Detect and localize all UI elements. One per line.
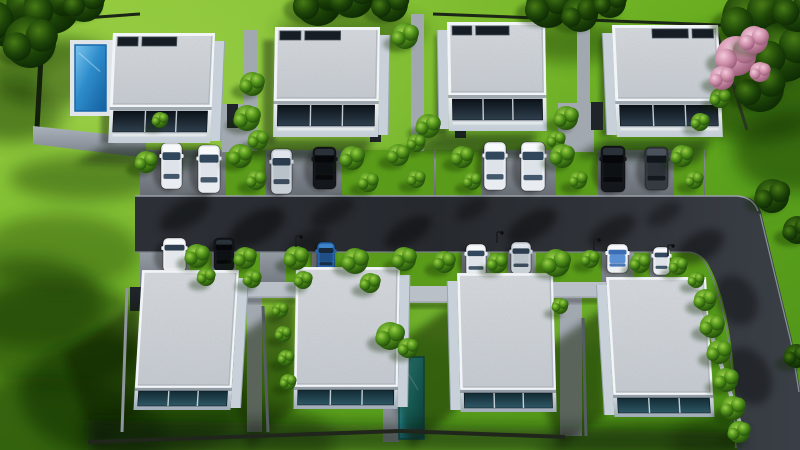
house-5 — [133, 270, 249, 410]
car-windshield — [315, 155, 335, 162]
front-glazing — [277, 105, 374, 126]
tree-canopy — [246, 176, 257, 187]
skylight — [652, 29, 688, 38]
car-mirror-right — [627, 251, 630, 255]
gate-pillar — [591, 102, 603, 130]
tree-canopy — [699, 322, 712, 335]
window-sill — [112, 134, 206, 137]
car-windshield — [165, 245, 185, 251]
front-glazing — [452, 99, 542, 120]
tree-canopy — [549, 152, 562, 165]
car-windshield — [216, 245, 233, 251]
pool-water — [75, 45, 106, 111]
tree-canopy — [754, 190, 773, 209]
car-rear-window — [524, 175, 543, 180]
tree-canopy — [713, 376, 726, 389]
car-mirror-left — [519, 154, 522, 158]
car-roof — [469, 256, 484, 266]
tree-canopy — [630, 259, 641, 270]
car-roof — [320, 253, 333, 262]
lamp-head — [597, 238, 600, 241]
car-roof — [524, 160, 543, 174]
car-windshield — [319, 248, 334, 253]
car-mirror-right — [669, 254, 672, 258]
tree-canopy — [3, 32, 32, 61]
tree-canopy — [569, 177, 579, 187]
car-hood — [647, 149, 666, 156]
tree-canopy — [248, 136, 259, 147]
car-rear-window — [487, 174, 504, 179]
skylight — [305, 31, 341, 40]
car-rear-window — [164, 174, 180, 179]
house-3 — [437, 22, 547, 131]
car-windshield — [486, 152, 505, 160]
car-mirror-left — [159, 154, 162, 158]
car-mirror-right — [530, 250, 533, 254]
car-roof — [656, 257, 668, 265]
car-hood — [216, 240, 232, 245]
car-mirror-right — [233, 246, 236, 250]
tree-canopy — [688, 277, 697, 286]
car-mirror-left — [269, 160, 272, 164]
glazing-mullion — [685, 105, 686, 126]
roof-overhang-shadow — [448, 95, 546, 98]
front-glazing — [464, 393, 552, 408]
car-rear-window — [656, 266, 668, 269]
tree-canopy — [407, 176, 417, 186]
car-windshield — [609, 250, 627, 255]
car-roof — [217, 250, 232, 260]
house-7 — [447, 273, 557, 412]
aerial-render-image — [0, 0, 800, 450]
tree-canopy — [552, 303, 561, 312]
tree-canopy — [553, 114, 566, 127]
tree-canopy — [693, 296, 705, 308]
roof-gravel-texture — [135, 270, 239, 388]
tree-canopy — [280, 379, 289, 388]
car-mirror-left — [196, 157, 199, 161]
roof-overhang-shadow — [274, 101, 379, 104]
car-mirror-left — [643, 157, 646, 161]
roof-overhang-shadow — [294, 387, 398, 390]
tree-canopy — [233, 254, 245, 266]
tree-canopy — [782, 225, 797, 240]
tree-canopy — [275, 331, 284, 340]
front-glazing — [617, 398, 710, 413]
car-hood — [603, 148, 623, 155]
car-mirror-left — [651, 254, 654, 258]
tree-canopy — [358, 178, 369, 189]
tree-canopy — [463, 178, 473, 188]
tree-canopy — [720, 404, 733, 417]
car-windshield — [513, 248, 530, 253]
car-roof — [487, 160, 504, 174]
tree-canopy — [541, 258, 556, 273]
house-2 — [273, 27, 390, 137]
tree-canopy — [685, 177, 695, 187]
car-hood — [200, 147, 218, 155]
tree-canopy — [691, 119, 701, 129]
car-mirror-right — [291, 160, 294, 164]
glazing-mullion — [649, 398, 650, 413]
house-1 — [108, 33, 225, 143]
car-mirror-left — [161, 246, 164, 250]
tree-canopy — [727, 428, 739, 440]
car-windshield — [163, 152, 181, 160]
tree-canopy — [391, 31, 405, 45]
tree-canopy — [283, 254, 296, 267]
car-hood — [468, 246, 484, 251]
front-glazing — [138, 391, 228, 406]
car-mirror-left — [482, 154, 485, 158]
tree-canopy — [272, 307, 281, 316]
tree-canopy — [239, 80, 252, 93]
roof-overhang-shadow — [135, 388, 232, 391]
tree-canopy — [360, 279, 371, 290]
car-mirror-right — [334, 249, 337, 253]
car-hood — [163, 145, 180, 152]
tree-canopy — [415, 122, 428, 135]
car-rear-window — [201, 177, 218, 182]
tree-canopy — [739, 35, 754, 50]
tree-canopy — [134, 158, 146, 170]
tree-canopy — [706, 348, 719, 361]
skylight — [476, 26, 509, 35]
lamp-head — [500, 231, 503, 234]
car-rear-window — [274, 179, 290, 184]
house-gap-shadow — [263, 40, 275, 143]
car-hood — [315, 149, 334, 156]
car-hood — [486, 144, 504, 152]
render-canvas — [0, 0, 800, 450]
car-mirror-left — [509, 250, 512, 254]
car-windshield — [603, 155, 624, 163]
tree-canopy — [386, 151, 398, 163]
car-roof — [604, 163, 623, 176]
car-mirror-right — [485, 252, 488, 256]
tree-canopy — [561, 7, 581, 27]
car-rear-window — [648, 176, 666, 181]
glazing-mullion — [653, 105, 654, 126]
car-mirror-left — [315, 249, 318, 253]
car-hood — [273, 151, 290, 158]
skylight — [692, 29, 714, 38]
car-rear-window — [320, 262, 333, 265]
car-mirror-right — [544, 154, 547, 158]
car-rear-window — [604, 177, 623, 182]
glazing-mullion — [679, 398, 680, 413]
tree-canopy — [227, 152, 240, 165]
tree-canopy — [750, 68, 761, 79]
tree-canopy — [375, 331, 390, 346]
front-glazing — [298, 390, 394, 405]
car-windshield — [655, 253, 669, 258]
car-mirror-left — [599, 157, 602, 161]
car-roof — [316, 163, 334, 175]
car-roof — [514, 254, 529, 263]
skylight — [142, 37, 177, 46]
tree-canopy — [341, 256, 355, 270]
glazing-mullion — [197, 391, 198, 406]
car-roof — [164, 160, 180, 173]
car-windshield — [200, 155, 219, 163]
car-mirror-left — [212, 246, 215, 250]
car-mirror-left — [464, 252, 467, 256]
roof-overhang-shadow — [110, 107, 212, 110]
car-windshield — [468, 251, 485, 257]
tree-canopy — [432, 258, 444, 270]
roof-overhang-shadow — [613, 395, 713, 398]
tree-canopy — [398, 344, 409, 355]
car-roof — [274, 166, 290, 179]
tree-canopy — [339, 154, 352, 167]
roof-gravel-texture — [457, 273, 556, 390]
lamp-head — [299, 235, 302, 238]
car-roof — [610, 255, 626, 263]
tree-canopy — [547, 137, 557, 147]
car-windshield — [523, 152, 544, 160]
window-sill — [453, 122, 543, 125]
tree-canopy — [391, 255, 404, 268]
car-hood — [513, 244, 529, 249]
car-hood — [165, 240, 184, 245]
car-mirror-right — [181, 154, 184, 158]
car-mirror-right — [624, 157, 627, 161]
tree-canopy — [152, 117, 161, 126]
tree-canopy — [233, 113, 247, 127]
window-sill — [277, 128, 374, 131]
skylight — [452, 26, 472, 35]
lamp-head — [671, 244, 674, 247]
car-windshield — [273, 158, 291, 166]
tree-canopy — [294, 277, 304, 287]
car-mirror-left — [605, 251, 608, 255]
car-mirror-left — [311, 157, 314, 161]
skylight — [280, 31, 301, 40]
car-rear-window — [610, 263, 626, 266]
tree-canopy — [243, 276, 253, 286]
tree-canopy — [450, 153, 462, 165]
tree-canopy — [184, 252, 197, 265]
glazing-mullion — [168, 391, 169, 406]
tree-canopy — [487, 259, 498, 270]
tree-canopy — [197, 274, 207, 284]
tree-canopy — [670, 152, 682, 164]
car-mirror-right — [505, 154, 508, 158]
glazing-mullion — [176, 111, 177, 132]
car-roof — [201, 163, 218, 177]
tree-canopy — [710, 94, 721, 105]
skylight — [117, 37, 138, 46]
tree-canopy — [278, 355, 287, 364]
tree-canopy — [581, 256, 591, 266]
tree-canopy — [773, 0, 799, 26]
car-rear-window — [514, 263, 529, 267]
roof-overhang-shadow — [460, 390, 556, 393]
tree-canopy — [709, 74, 722, 87]
car-mirror-right — [219, 157, 222, 161]
tree-canopy — [669, 263, 679, 273]
car-rear-window — [316, 175, 334, 180]
tree-canopy — [783, 352, 796, 365]
